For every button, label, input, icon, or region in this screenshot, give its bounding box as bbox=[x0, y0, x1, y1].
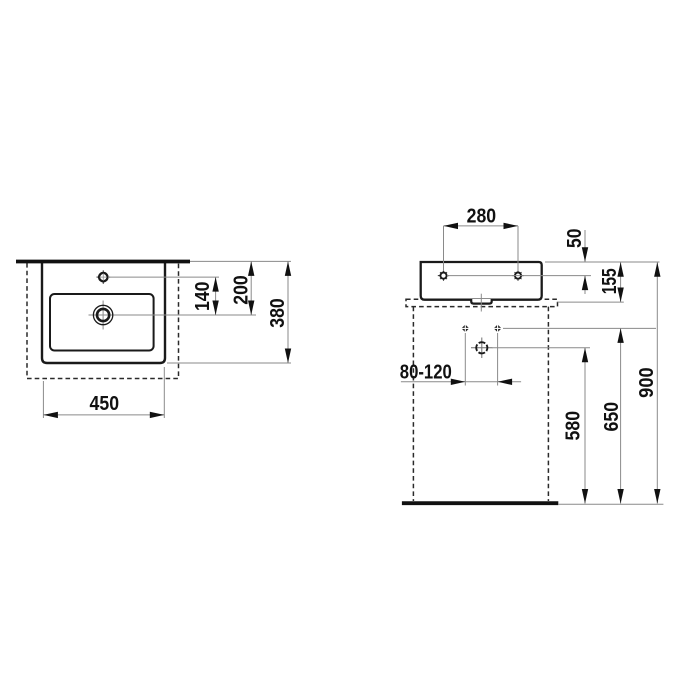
svg-text:50: 50 bbox=[564, 229, 586, 249]
svg-text:140: 140 bbox=[192, 282, 214, 312]
svg-text:380: 380 bbox=[267, 298, 289, 328]
svg-text:280: 280 bbox=[467, 206, 497, 228]
svg-text:80-120: 80-120 bbox=[400, 362, 452, 384]
svg-text:650: 650 bbox=[601, 402, 623, 432]
svg-text:450: 450 bbox=[90, 393, 120, 415]
svg-text:200: 200 bbox=[230, 275, 252, 305]
svg-text:900: 900 bbox=[636, 367, 658, 398]
svg-text:155: 155 bbox=[599, 268, 621, 294]
svg-text:580: 580 bbox=[562, 411, 584, 441]
